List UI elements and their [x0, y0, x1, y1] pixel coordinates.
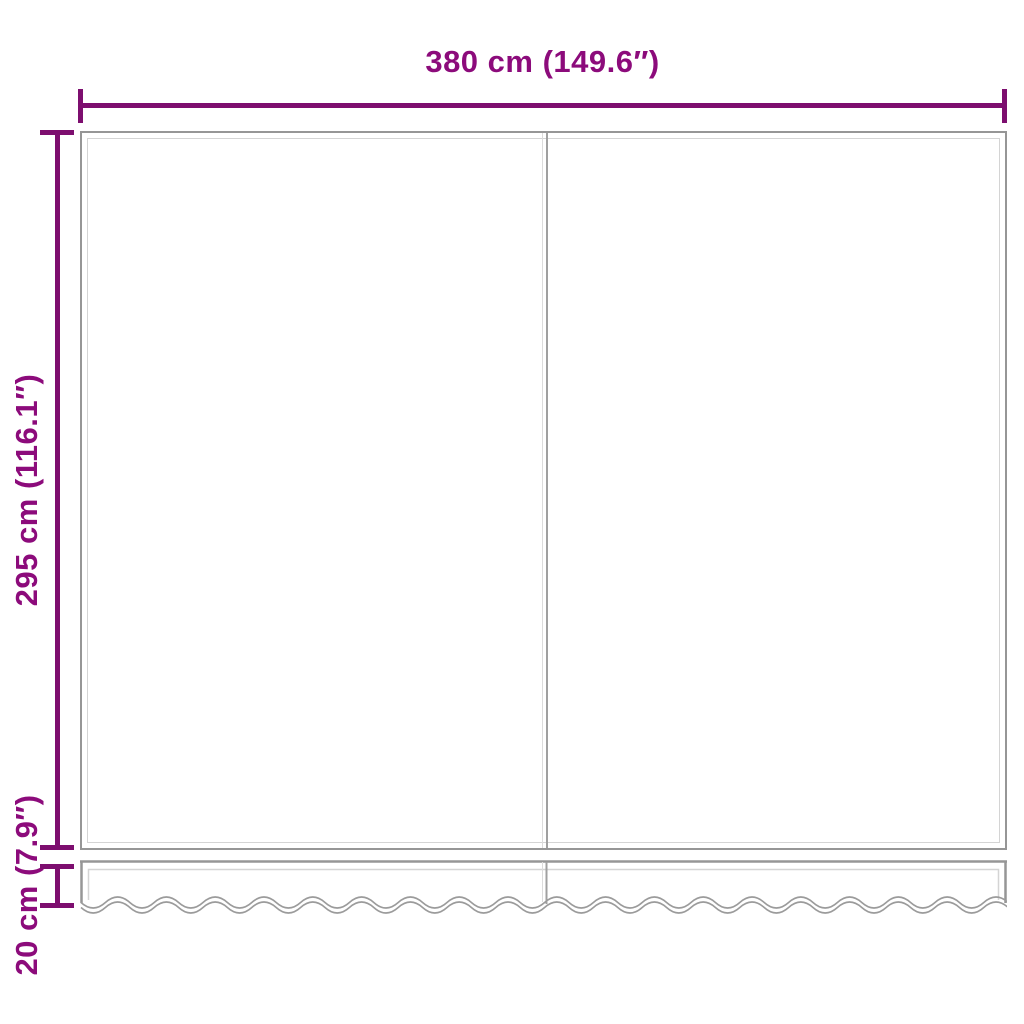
- valance-dimension-line: [55, 866, 60, 907]
- height-dimension-line: [55, 130, 60, 849]
- width-dimension-right-tick: [1002, 89, 1007, 123]
- valance-hem-line: [89, 870, 999, 901]
- width-dimension-label: 380 cm (149.6″): [80, 44, 1005, 80]
- valance-dimension-label: 20 cm (7.9″): [9, 794, 45, 975]
- panel-center-seam: [546, 133, 548, 848]
- panel-center-seam-light: [542, 133, 543, 848]
- height-dimension-top-tick: [40, 130, 74, 135]
- width-dimension-line: [80, 103, 1005, 108]
- valance-dimension-top-tick: [40, 864, 74, 869]
- valance-strip: [80, 860, 1007, 918]
- awning-fabric-panel: [80, 131, 1007, 850]
- height-dimension-bottom-tick: [40, 845, 74, 850]
- product-dimension-diagram: 380 cm (149.6″) 295 cm (116.1″) 20 cm (7…: [0, 0, 1024, 1024]
- width-dimension-left-tick: [78, 89, 83, 123]
- height-dimension-label: 295 cm (116.1″): [9, 374, 45, 607]
- panel-hem-line: [87, 138, 1000, 843]
- valance-dimension-bottom-tick: [40, 903, 74, 908]
